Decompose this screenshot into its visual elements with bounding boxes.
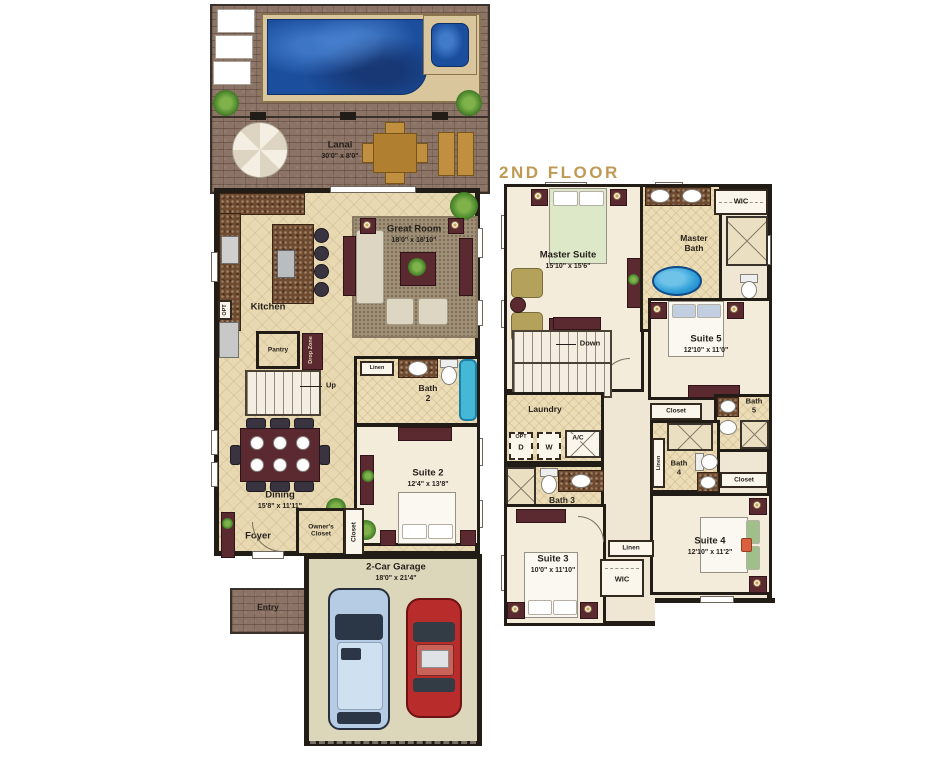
great-room-label: Great Room [387, 225, 441, 236]
lamp-icon [451, 221, 459, 229]
red-car-rear-window [413, 678, 455, 692]
closet-label: Closet [666, 407, 686, 414]
suv-tailgate [337, 712, 381, 724]
bar-stool [314, 264, 329, 279]
suite5-label: Suite 5 [690, 335, 721, 346]
shower [726, 216, 768, 266]
suite4-dims: 12'10" x 11'2" [688, 549, 733, 557]
kitchen-label: Kitchen [251, 303, 286, 314]
plate [296, 458, 310, 472]
dining-chair [246, 418, 266, 429]
sink-icon [720, 400, 736, 413]
plant-icon [456, 90, 482, 116]
garage-door [310, 741, 476, 744]
suv-rear-window [341, 648, 361, 660]
fridge-icon [219, 322, 239, 358]
nightstand [460, 530, 476, 546]
shower [667, 423, 713, 451]
ac-label: A/C [571, 434, 584, 441]
lounge-chair [213, 61, 251, 85]
toilet-icon [741, 281, 757, 299]
bath4-label: Bath 4 [671, 459, 688, 476]
range-icon [221, 236, 239, 264]
stair-landing [512, 362, 612, 364]
garage-dims: 18'0" x 21'4" [375, 575, 416, 583]
bath5-label: Bath 5 [746, 397, 763, 414]
plant-icon [362, 470, 374, 482]
plant-icon [213, 90, 239, 116]
wall-post [250, 112, 266, 120]
arrow-line [300, 386, 322, 387]
sofa [356, 230, 384, 304]
washer-label: W [545, 444, 552, 453]
lanai-dims: 30'0" x 8'0" [321, 153, 358, 161]
dining-chair [294, 418, 314, 429]
sink-icon [700, 476, 716, 489]
armchair [511, 268, 543, 298]
floorplan-canvas: Lanai 30'0" x 8'0" Great Room 18'0" x 18… [0, 0, 946, 757]
dining-chair [294, 481, 314, 492]
suite3-dims: 10'0" x 11'10" [531, 567, 576, 575]
lamp-icon [613, 192, 621, 200]
toilet-icon [441, 366, 457, 385]
window [700, 596, 734, 603]
plate [296, 436, 310, 450]
suite3-label: Suite 3 [537, 555, 568, 566]
suv-windshield [335, 614, 383, 640]
toilet-icon [701, 454, 718, 470]
lamp-icon [730, 305, 738, 313]
window [211, 252, 218, 282]
slider-door [330, 186, 416, 193]
entry-label: Entry [257, 603, 279, 613]
sun-lounger [457, 132, 474, 176]
bathtub-icon [459, 359, 477, 421]
pillow [553, 191, 578, 206]
arrow-line [556, 344, 576, 345]
umbrella-icon [232, 122, 288, 178]
closet-label: Closet [734, 476, 754, 483]
sink-icon [682, 189, 702, 203]
pillow [553, 600, 577, 615]
plate [250, 436, 264, 450]
lamp-icon [363, 221, 371, 229]
pillow [697, 304, 721, 318]
sink-icon [650, 189, 670, 203]
pillow [672, 304, 696, 318]
plate [273, 436, 287, 450]
linen-label: Linen [370, 365, 385, 371]
master-bath-label: Master Bath [680, 234, 707, 254]
master-suite-dims: 15'10" x 15'6" [545, 263, 590, 271]
round-table [510, 297, 526, 313]
suite2-dims: 12'4" x 13'8" [407, 481, 448, 489]
window [211, 430, 218, 455]
opt-label: OPT [222, 304, 228, 315]
wic-label: WIC [615, 576, 630, 585]
toilet-icon [719, 420, 737, 435]
suite2-label: Suite 2 [412, 469, 443, 480]
master-bath-line2: Bath [680, 244, 707, 254]
sofa-table [343, 236, 356, 296]
closet-label: Closet [350, 522, 357, 542]
bar-stool [314, 228, 329, 243]
patio-chair [362, 143, 374, 163]
laundry-label: Laundry [528, 405, 562, 415]
armchair [418, 298, 448, 325]
down-label: Down [580, 340, 600, 349]
wall-post [340, 112, 356, 120]
lamp-icon [584, 605, 592, 613]
plant-icon [222, 518, 233, 529]
tv-console [459, 238, 473, 296]
armchair [386, 298, 414, 325]
pillow [402, 524, 427, 539]
island-sink [277, 250, 295, 278]
drop-zone-label: Drop Zone [308, 336, 314, 364]
plant-icon [408, 258, 426, 276]
dining-label: Dining [265, 491, 295, 502]
lounge-chair [215, 35, 253, 59]
bar-stool [314, 282, 329, 297]
patio-table [373, 133, 417, 173]
owners-closet-line1: Owner's [308, 524, 333, 531]
kitchen-counter [219, 193, 305, 215]
bar-stool [314, 246, 329, 261]
dresser [398, 427, 452, 441]
wall-post [432, 112, 448, 120]
sink-icon [408, 361, 428, 376]
plate [250, 458, 264, 472]
window [211, 462, 218, 487]
lounge-chair [217, 9, 255, 33]
lamp-icon [753, 579, 761, 587]
bath2-line2: 2 [419, 394, 438, 404]
closet-rod [605, 568, 639, 569]
plan-cutout [655, 598, 775, 635]
suite5-dims: 12'10" x 11'0" [684, 347, 729, 355]
dresser [516, 509, 566, 523]
patio-chair [416, 143, 428, 163]
shower [740, 420, 769, 449]
soaking-tub [652, 266, 702, 296]
lamp-icon [753, 501, 761, 509]
entry-door-gap [252, 551, 284, 559]
pillow [428, 524, 453, 539]
up-label: Up [326, 382, 336, 391]
sun-lounger [438, 132, 455, 176]
opt-label: OPT [515, 434, 526, 440]
dining-chair [319, 445, 330, 465]
plant-icon [628, 274, 639, 285]
owners-closet-line2: Closet [308, 531, 333, 538]
suite4-label: Suite 4 [694, 537, 725, 548]
sink-icon [571, 474, 591, 488]
plate [273, 458, 287, 472]
garage-label: 2-Car Garage [366, 563, 426, 574]
toilet-icon [541, 475, 557, 494]
lanai-label: Lanai [328, 141, 353, 152]
red-car-sunroof [421, 650, 449, 668]
wic-label: WIC [734, 198, 749, 207]
nightstand [380, 530, 396, 546]
pantry-label: Pantry [268, 346, 288, 353]
linen-label: Linen [656, 456, 662, 471]
stairs-up [245, 370, 321, 416]
bath2-label: Bath 2 [419, 384, 438, 404]
lamp-icon [534, 192, 542, 200]
accent-pillow [741, 538, 752, 552]
bath5-line2: 5 [746, 406, 763, 415]
plant-icon [450, 192, 478, 220]
dining-chair [246, 481, 266, 492]
hall-console [553, 317, 601, 330]
patio-chair [385, 172, 405, 184]
pool [267, 19, 427, 95]
dryer-label: D [518, 444, 523, 453]
dining-chair [230, 445, 241, 465]
lamp-icon [511, 605, 519, 613]
pillow [528, 600, 552, 615]
pillow [579, 191, 604, 206]
red-car-windshield [413, 622, 455, 642]
bath4-line2: 4 [671, 468, 688, 477]
master-suite-label: Master Suite [540, 251, 597, 262]
lamp-icon [653, 305, 661, 313]
linen-label: Linen [622, 544, 639, 551]
great-room-dims: 18'0" x 18'10" [391, 237, 436, 245]
patio-chair [385, 122, 405, 134]
second-floor-heading: 2ND FLOOR [499, 163, 620, 183]
spa [431, 23, 469, 67]
owners-closet-label: Owner's Closet [308, 524, 333, 539]
dining-chair [270, 418, 290, 429]
